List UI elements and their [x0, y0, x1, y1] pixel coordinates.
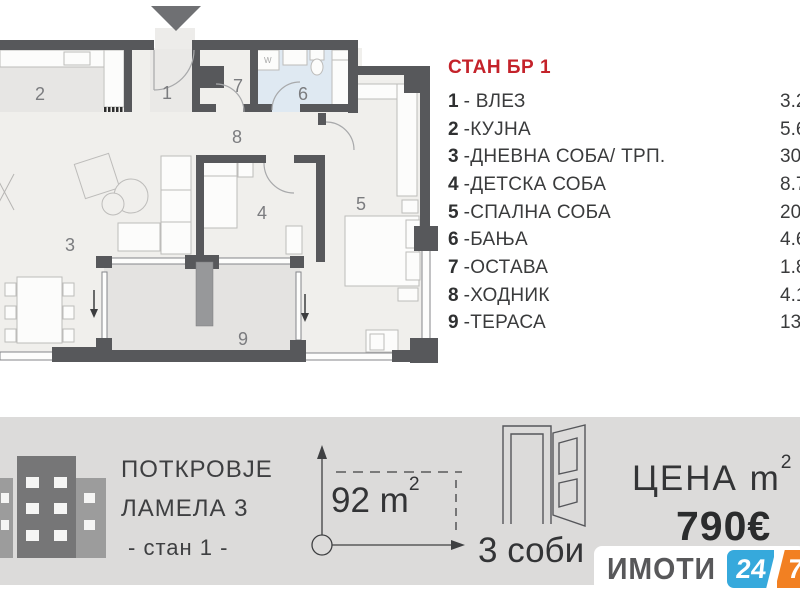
room-list-item: 6 -БАЊА 4.60 [448, 226, 800, 254]
project-line-3: - стан 1 - [121, 528, 273, 567]
brand-name: ИМОТИ [607, 551, 716, 587]
room-area: 1.80 [780, 257, 800, 279]
room-label-6: 6 [298, 84, 308, 104]
badge-24-text: 24 [734, 554, 767, 585]
project-name: ПОТКРОВЈЕ ЛАМЕЛА 3 - стан 1 - [121, 450, 273, 567]
room-area: 20.7 [780, 202, 800, 224]
room-label-8: 8 [232, 127, 242, 147]
room-area: 30.0 [780, 146, 800, 168]
area-value: 92 m [331, 481, 409, 520]
building-icon [0, 456, 106, 558]
room-list-item: 7 -ОСТАВА 1.80 [448, 254, 800, 282]
room-area: 3.20 [780, 91, 800, 113]
room-list-item: 1 - ВЛЕЗ 3.20 [448, 88, 800, 116]
room-list-item: 4 -ДЕТСКА СОБА 8.70 [448, 171, 800, 199]
room-number: 2 [448, 119, 459, 141]
door-icon [497, 423, 589, 529]
room-number: 4 [448, 174, 459, 196]
room-name: -КУЈНА [464, 119, 531, 141]
room-area: 13.3 [780, 312, 800, 334]
room-name: -ДНЕВНА СОБА/ ТРП. [464, 146, 666, 168]
room-number: 3 [448, 146, 459, 168]
project-line-1: ПОТКРОВЈЕ [121, 450, 273, 489]
room-label-7: 7 [233, 76, 243, 96]
apartment-room-list: СТАН БР 1 1 - ВЛЕЗ 3.20 2 -КУЈНА 5.60 3 … [448, 57, 800, 337]
price-value: 790€ [676, 503, 771, 550]
brand-logo: ИМОТИ 24 7 [594, 546, 800, 592]
room-label-5: 5 [356, 194, 366, 214]
entrance-arrow-icon [151, 6, 201, 31]
room-label-3: 3 [65, 235, 75, 255]
room-area: 4.10 [780, 285, 800, 307]
room-name: -БАЊА [464, 229, 528, 251]
room-label-1: 1 [162, 83, 172, 103]
room-name: -ОСТАВА [464, 257, 549, 279]
floor-plan: W [0, 0, 440, 415]
room-list-item: 5 -СПАЛНА СОБА 20.7 [448, 199, 800, 227]
room-label-9: 9 [238, 329, 248, 349]
room-number: 5 [448, 202, 459, 224]
room-area: 4.60 [780, 229, 800, 251]
area-size-label: 92 m2 [331, 481, 420, 521]
badge-24-7: 24 7 [727, 550, 800, 588]
room-area: 8.70 [780, 174, 800, 196]
room-name: -ДЕТСКА СОБА [464, 174, 607, 196]
rooms-count-label: 3 соби [478, 531, 584, 571]
room-number: 6 [448, 229, 459, 251]
badge-7-text: 7 [786, 554, 800, 585]
real-estate-flyer: { "theme": { "title_red": "#c4222a", "wa… [0, 0, 800, 600]
room-name: -СПАЛНА СОБА [464, 202, 611, 224]
washer-icon: W [264, 56, 272, 65]
chimney [196, 262, 213, 326]
room-number: 9 [448, 312, 459, 334]
room-name: - ВЛЕЗ [464, 91, 526, 113]
apartment-title: СТАН БР 1 [448, 57, 800, 79]
area-superscript: 2 [409, 474, 420, 495]
room-list-item: 2 -КУЈНА 5.60 [448, 116, 800, 144]
price-per-m2-label: ЦЕНА m2 [632, 459, 793, 499]
room-label-4: 4 [257, 203, 267, 223]
price-superscript: 2 [781, 452, 794, 473]
room-area: 5.60 [780, 119, 800, 141]
room-number: 7 [448, 257, 459, 279]
room-list-item: 9 -ТЕРАСА 13.3 [448, 310, 800, 338]
room-label-2: 2 [35, 84, 45, 104]
room-list-item: 3 -ДНЕВНА СОБА/ ТРП. 30.0 [448, 143, 800, 171]
room-name: -ХОДНИК [464, 285, 550, 307]
room-number: 8 [448, 285, 459, 307]
price-label-text: ЦЕНА m [632, 459, 781, 498]
project-line-2: ЛАМЕЛА 3 [121, 489, 273, 528]
room-name: -ТЕРАСА [464, 312, 546, 334]
room-number: 1 [448, 91, 459, 113]
room-list-item: 8 -ХОДНИК 4.10 [448, 282, 800, 310]
